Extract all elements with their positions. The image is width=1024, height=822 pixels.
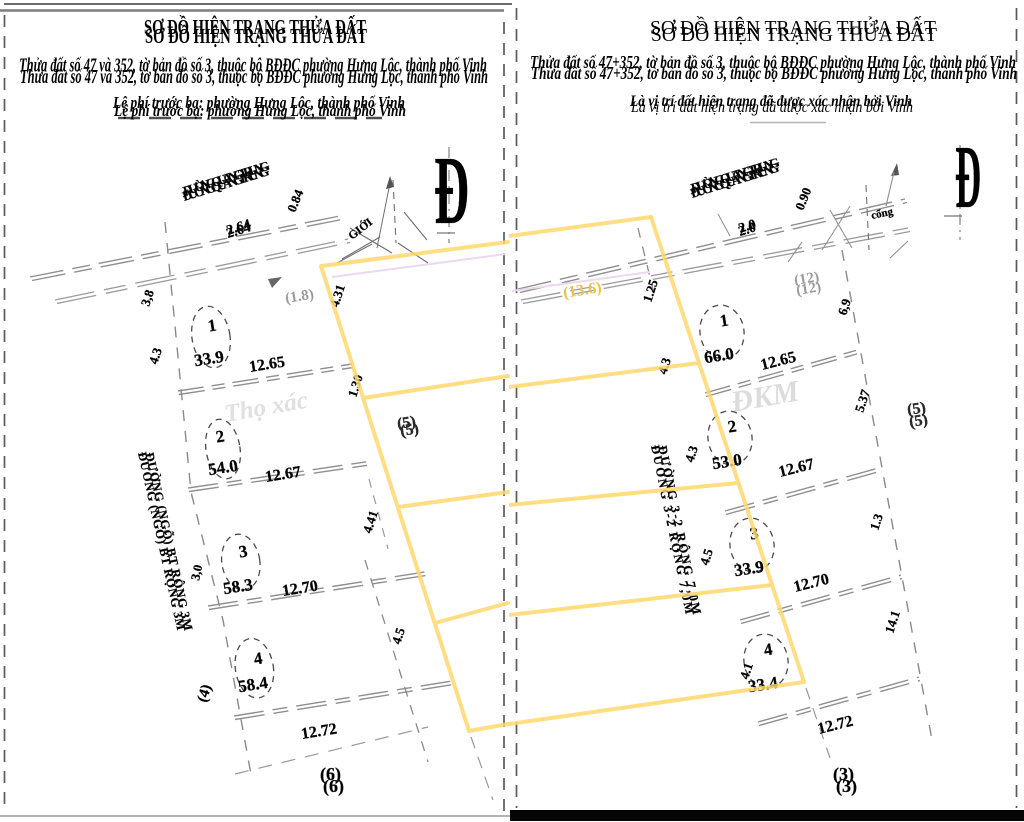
svg-text:4.5: 4.5	[389, 625, 408, 646]
svg-text:SƠ ĐỒ HIỆN TRẠNG THỬA ĐẤT: SƠ ĐỒ HIỆN TRẠNG THỬA ĐẤT	[145, 24, 367, 48]
svg-text:12.67: 12.67	[264, 464, 302, 486]
svg-text:12.72: 12.72	[300, 721, 338, 743]
svg-text:3: 3	[237, 541, 248, 561]
svg-text:4.41: 4.41	[360, 509, 381, 535]
svg-text:2: 2	[726, 416, 737, 436]
svg-text:cống: cống	[870, 206, 895, 222]
svg-text:Đ: Đ	[434, 137, 469, 245]
svg-text:12.70: 12.70	[281, 578, 319, 600]
svg-text:Thửa đất số 47 và 352, tờ bản: Thửa đất số 47 và 352, tờ bản đồ số 3, t…	[20, 67, 488, 88]
svg-text:12.72: 12.72	[816, 713, 855, 738]
svg-text:33.9: 33.9	[733, 557, 765, 580]
svg-text:4.3: 4.3	[146, 345, 165, 366]
svg-text:1: 1	[718, 310, 729, 330]
svg-text:12.70: 12.70	[792, 571, 831, 596]
svg-text:54.0: 54.0	[207, 456, 239, 479]
svg-text:Đ: Đ	[955, 127, 981, 227]
svg-text:(5): (5)	[908, 411, 929, 431]
svg-text:1: 1	[206, 315, 217, 335]
svg-text:(1.8): (1.8)	[284, 287, 315, 307]
svg-text:0.84: 0.84	[284, 187, 307, 214]
svg-text:4.3: 4.3	[682, 443, 701, 464]
svg-text:5.37: 5.37	[852, 387, 873, 414]
svg-text:12.65: 12.65	[759, 349, 798, 374]
svg-text:66.0: 66.0	[703, 344, 735, 367]
svg-text:3,8: 3,8	[138, 287, 157, 308]
svg-text:Thọ xác: Thọ xác	[222, 387, 309, 428]
svg-text:(6): (6)	[323, 776, 344, 797]
svg-text:Thửa đất số 47+352, tờ bản đồ: Thửa đất số 47+352, tờ bản đồ số 3, thuộ…	[531, 63, 1017, 83]
svg-text:1.3: 1.3	[867, 511, 886, 532]
svg-text:4.5: 4.5	[697, 546, 716, 567]
svg-text:4: 4	[252, 648, 264, 668]
svg-text:4: 4	[762, 639, 774, 659]
svg-text:ĐKM: ĐKM	[728, 374, 803, 419]
svg-text:0.90: 0.90	[792, 185, 814, 212]
svg-text:12.67: 12.67	[777, 456, 816, 481]
svg-text:SƠ ĐỒ HIỆN TRẠNG THỬA ĐẤT: SƠ ĐỒ HIỆN TRẠNG THỬA ĐẤT	[651, 22, 937, 46]
svg-text:(3): (3)	[836, 776, 857, 797]
svg-text:12.65: 12.65	[248, 354, 286, 376]
svg-text:Là vị trí đất hiện trạng đã đư: Là vị trí đất hiện trạng đã được xác nhậ…	[630, 99, 913, 116]
svg-text:2: 2	[214, 426, 225, 446]
svg-text:Lệ phí trước bạ: phường Hưng L: Lệ phí trước bạ: phường Hưng Lộc, thành …	[113, 101, 406, 120]
svg-text:(12): (12)	[795, 279, 822, 299]
svg-text:58.4: 58.4	[237, 673, 270, 696]
svg-text:3,0: 3,0	[188, 563, 205, 581]
svg-text:14.1: 14.1	[882, 609, 903, 635]
svg-text:58.3: 58.3	[222, 575, 254, 598]
svg-text:(5): (5)	[399, 420, 420, 440]
svg-text:(4): (4)	[195, 683, 216, 705]
